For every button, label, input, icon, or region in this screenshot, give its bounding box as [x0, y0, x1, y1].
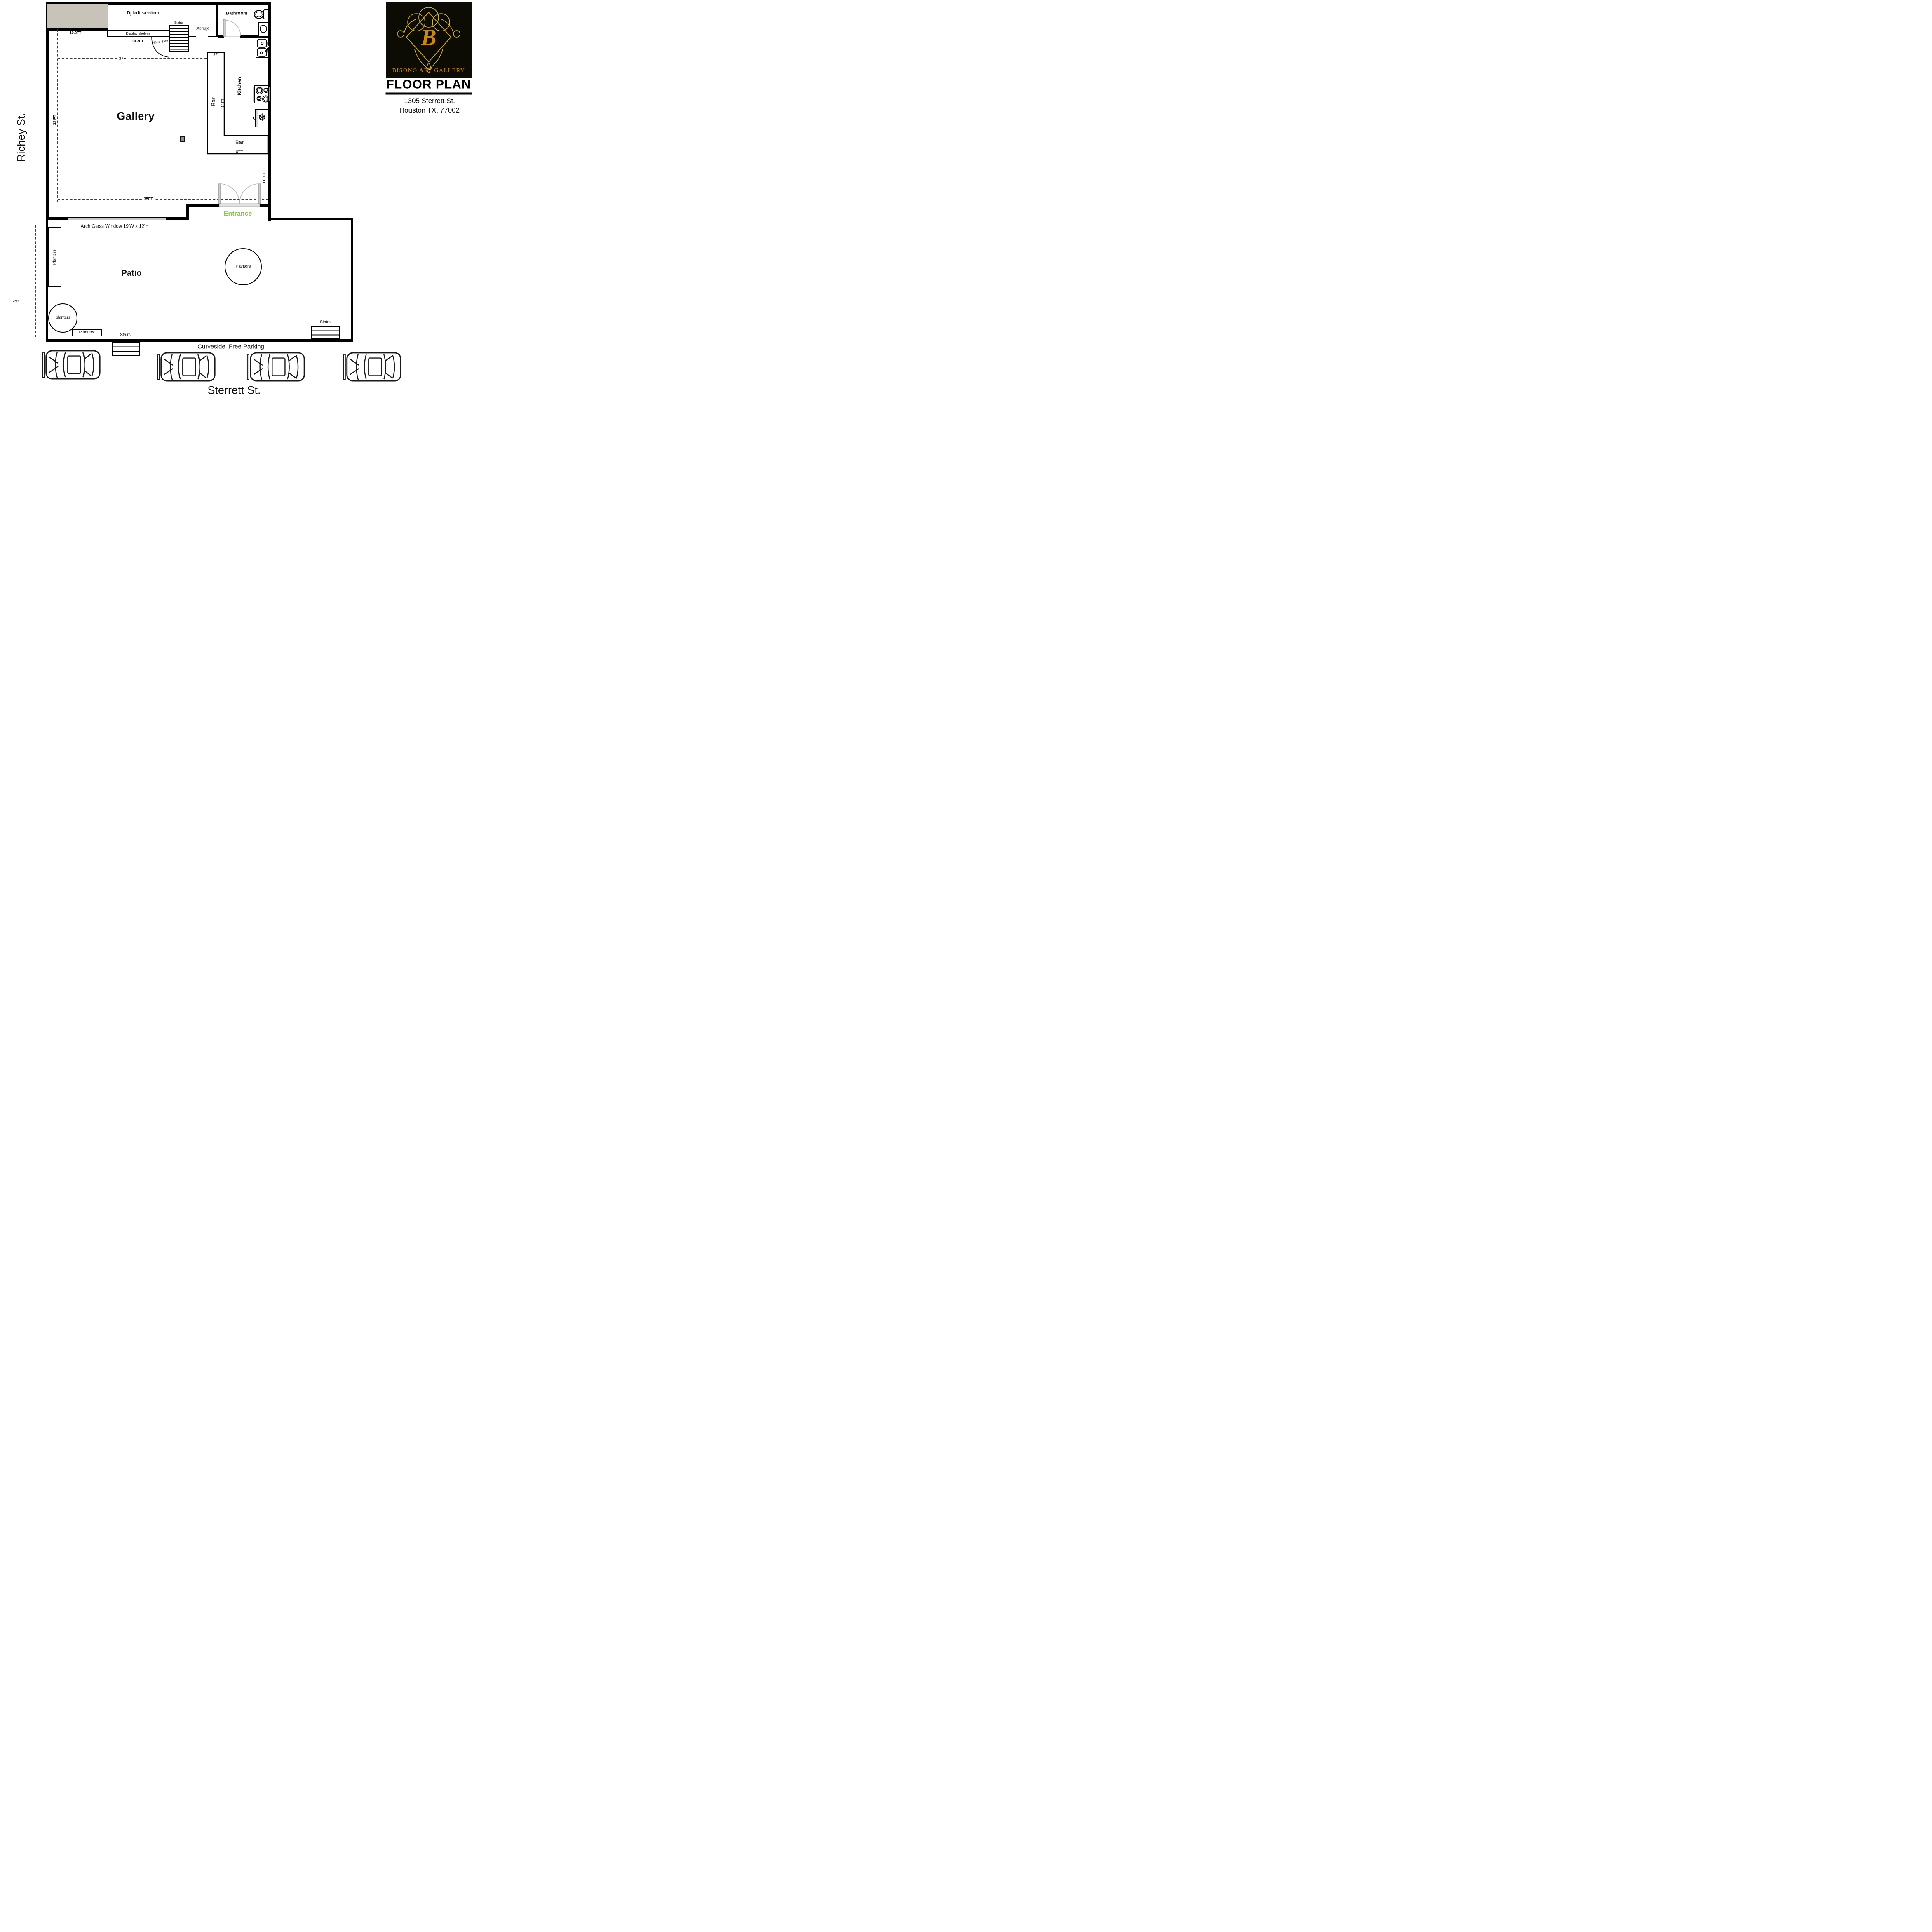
dim-gallery-top: 27FT — [117, 56, 130, 61]
parked-car-icon — [42, 349, 102, 380]
wall-bathroom-bottom-b — [240, 35, 268, 38]
dim-loft-width: 10.2FT — [70, 31, 82, 35]
parked-car-icon — [246, 351, 307, 383]
wall-patio-top-right — [268, 218, 353, 220]
toilet-icon — [254, 10, 269, 19]
parked-car-icon — [343, 351, 403, 383]
dim-bar-back: 8'FT — [236, 150, 243, 154]
wall-patio-right — [351, 218, 353, 342]
room-kitchen: Kitchen — [237, 77, 242, 95]
loft-stairs-label: Stairs — [174, 21, 183, 25]
street-sterrett: Sterrett St. — [207, 385, 261, 396]
gallery-logo: B — [386, 2, 472, 78]
planters-patio-label: Planters — [236, 265, 251, 269]
planters-corner-label: planters — [56, 316, 70, 320]
bar-counter-outline — [207, 52, 268, 154]
patio-stairs-right-label: Stairs — [320, 320, 331, 324]
dim-bar-length: 14'FT — [221, 99, 225, 107]
street-richey: Richey St. — [16, 113, 26, 162]
patio-stairs-right — [311, 326, 340, 339]
bathroom-door-arc — [225, 20, 241, 36]
parking-note: Curveside Free Parking — [197, 344, 264, 350]
dim-entrance-wall: 11.9FT — [263, 172, 266, 183]
bar-front-label: Bar — [210, 97, 216, 106]
dim-line-32ft — [57, 29, 58, 202]
dim-gallery-bottom: 35FT — [142, 197, 155, 201]
wall-bathroom-left — [216, 5, 218, 37]
logo-ornament-icon: B — [386, 2, 472, 78]
bathroom-sink-icon — [259, 23, 268, 36]
gallery-column — [180, 136, 185, 142]
wall-dj-boundary-a — [189, 36, 196, 37]
dim-patio-left: 25ft — [13, 300, 19, 303]
logo-monogram: B — [420, 25, 436, 50]
wall-door-left — [186, 204, 219, 207]
dim-line-25ft — [35, 225, 36, 337]
parked-car-icon — [157, 351, 217, 383]
room-bathroom: Bathroom — [226, 12, 247, 16]
dim-line-27ft — [58, 58, 207, 59]
dim-gallery-left: 32 FT — [53, 115, 57, 125]
room-storage: Storage — [195, 26, 209, 31]
arch-window-label: Arch Glass Window 19'W x 12'H — [81, 224, 149, 229]
planters-wall-label: Planters — [53, 250, 57, 265]
freezer-icon: ❄ — [258, 113, 267, 123]
bar-back-label: Bar — [235, 140, 244, 145]
address-line1: 1305 Sterrett St. — [404, 97, 455, 105]
sheet-title: FLOOR PLAN — [386, 78, 472, 95]
dj-loft-block — [47, 4, 108, 28]
dim-shelf-width: 10.3FT — [132, 40, 144, 43]
display-shelves-label: Display shelves — [126, 32, 150, 35]
wall-dj-loft-bottom — [46, 28, 108, 31]
loft-stairs — [169, 25, 189, 52]
wall-dj-boundary-b — [208, 36, 216, 37]
floor-plan: ❄ — [0, 0, 483, 483]
patio-stairs-left — [112, 342, 140, 356]
arch-glass-window — [68, 218, 166, 220]
elev-step-label: Elev. Step — [153, 40, 169, 45]
planters-box-label: Planters — [79, 331, 94, 335]
dim-line-35ft — [58, 199, 268, 200]
bathroom-door-leaf — [223, 19, 225, 36]
wall-right-gallery — [268, 2, 271, 221]
patio-stairs-left-label: Stairs — [120, 333, 131, 337]
room-gallery: Gallery — [117, 111, 155, 122]
kitchen-sink-icon — [256, 38, 270, 58]
gallery-name: BISONG ART GALLERY — [392, 68, 465, 74]
wall-patio-bottom — [46, 339, 353, 342]
wall-left-gallery — [46, 2, 49, 220]
bathroom-door-threshold — [225, 36, 240, 37]
address-line2: Houston TX. 77002 — [399, 106, 460, 115]
wall-bathroom-bottom-a — [218, 35, 224, 38]
dim-bar-width: 27" — [213, 53, 218, 57]
entrance-label: Entrance — [224, 211, 252, 217]
room-dj-loft: Dj loft section — [127, 10, 159, 15]
room-patio: Patio — [122, 269, 142, 277]
entrance-doors — [218, 184, 261, 207]
wall-door-right — [259, 204, 271, 207]
